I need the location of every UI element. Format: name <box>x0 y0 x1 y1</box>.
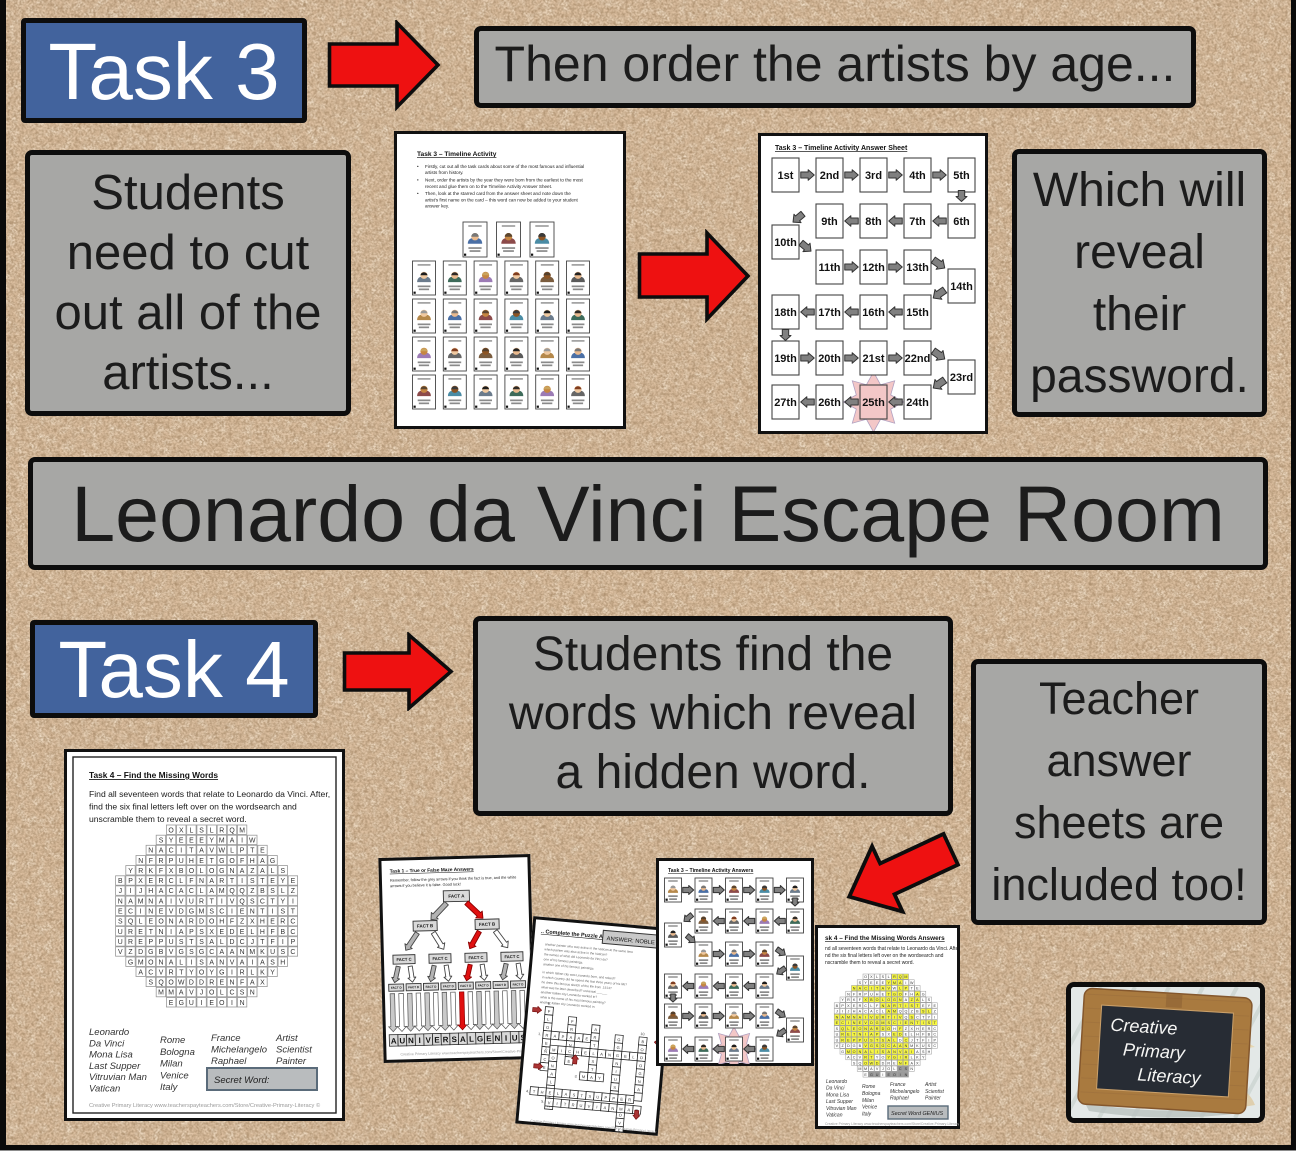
svg-text:C: C <box>169 888 174 895</box>
svg-text:R: R <box>443 1035 449 1044</box>
svg-text:Q: Q <box>239 888 245 895</box>
svg-text:G: G <box>881 1044 884 1048</box>
svg-text:O: O <box>881 1056 884 1060</box>
svg-text:artists from history.: artists from history. <box>425 170 463 175</box>
svg-text:A: A <box>209 959 214 966</box>
svg-text:D: D <box>882 1027 885 1031</box>
svg-text:Q: Q <box>239 898 245 905</box>
svg-text:A: A <box>159 898 164 905</box>
svg-text:I: I <box>911 1050 912 1054</box>
svg-text:B: B <box>260 888 265 895</box>
svg-text:N: N <box>219 959 224 966</box>
svg-text:A: A <box>260 959 265 966</box>
svg-text:L: L <box>200 888 204 895</box>
svg-text:P: P <box>128 878 133 885</box>
svg-text:L: L <box>469 1035 474 1044</box>
svg-text:R: R <box>280 919 285 926</box>
svg-text:O: O <box>199 969 205 976</box>
svg-text:Y: Y <box>128 868 133 875</box>
svg-text:M: M <box>619 1106 623 1111</box>
svg-text:arrows if you believe it is fa: arrows if you believe it is false. Good … <box>390 882 461 888</box>
svg-text:N: N <box>853 1015 856 1019</box>
svg-text:Vatican: Vatican <box>826 1113 843 1119</box>
svg-text:U: U <box>876 1015 879 1019</box>
svg-text:11th: 11th <box>818 262 840 274</box>
svg-text:I: I <box>221 898 223 905</box>
svg-text:R: R <box>928 1027 931 1031</box>
svg-text:G: G <box>893 1056 896 1060</box>
svg-text:F: F <box>159 868 163 875</box>
svg-text:N: N <box>899 1061 902 1065</box>
svg-text:Last Supper: Last Supper <box>89 1061 141 1072</box>
svg-text:1.: 1. <box>538 1032 541 1036</box>
svg-text:Raphael: Raphael <box>211 1056 247 1067</box>
svg-text:L: L <box>271 868 275 875</box>
svg-text:O: O <box>887 1067 890 1071</box>
svg-text:France: France <box>890 1082 906 1088</box>
svg-text:M: M <box>219 888 225 895</box>
svg-text:G: G <box>219 868 224 875</box>
svg-text:L: L <box>922 998 924 1002</box>
svg-text:M: M <box>138 959 144 966</box>
svg-text:I: I <box>201 1000 203 1007</box>
svg-text:E: E <box>148 919 153 926</box>
svg-text:J: J <box>847 1010 849 1014</box>
svg-text:S: S <box>209 909 214 916</box>
svg-text:E: E <box>240 929 245 936</box>
svg-text:20th: 20th <box>818 353 841 365</box>
svg-text:J: J <box>139 888 142 895</box>
svg-text:R: R <box>209 980 214 987</box>
svg-text:O: O <box>229 858 235 865</box>
svg-text:U: U <box>836 1033 839 1037</box>
svg-text:R: R <box>159 858 164 865</box>
svg-text:C: C <box>169 878 174 885</box>
svg-text:R: R <box>859 1004 862 1008</box>
svg-text:N: N <box>882 1004 885 1008</box>
svg-text:C: C <box>189 888 194 895</box>
svg-text:7th: 7th <box>909 216 926 228</box>
svg-text:Z: Z <box>250 868 254 875</box>
svg-text:G: G <box>853 1044 856 1048</box>
svg-text:C: C <box>148 969 153 976</box>
svg-text:Italy: Italy <box>160 1082 179 1093</box>
svg-text:L: L <box>847 1027 849 1031</box>
svg-text:Mona Lisa: Mona Lisa <box>89 1050 133 1061</box>
svg-text:FACT D: FACT D <box>460 984 472 988</box>
svg-text:I: I <box>923 1021 924 1025</box>
svg-text:V: V <box>230 898 235 905</box>
svg-text:R: R <box>593 1035 596 1040</box>
svg-text:Venice: Venice <box>160 1070 189 1081</box>
svg-text:Z: Z <box>240 919 244 926</box>
svg-text:F: F <box>149 858 153 865</box>
svg-text:E: E <box>291 878 296 885</box>
svg-text:Italy: Italy <box>862 1112 872 1118</box>
svg-text:Vitruvian Man: Vitruvian Man <box>826 1106 857 1112</box>
svg-text:J: J <box>200 990 203 997</box>
svg-text:R: R <box>240 969 245 976</box>
svg-text:A: A <box>179 919 184 926</box>
svg-text:R: R <box>219 878 224 885</box>
svg-text:R: R <box>199 898 204 905</box>
svg-text:2.: 2. <box>545 1047 548 1051</box>
svg-text:Literacy: Literacy <box>1137 1064 1202 1088</box>
svg-text:A: A <box>209 888 214 895</box>
svg-text:I: I <box>272 909 274 916</box>
svg-text:I: I <box>180 848 182 855</box>
svg-text:N: N <box>240 949 245 956</box>
svg-text:Find all seventeen words that: Find all seventeen words that relate to … <box>89 789 330 799</box>
svg-text:I: I <box>882 1073 883 1077</box>
svg-text:N: N <box>230 868 235 875</box>
svg-text:W: W <box>870 1061 874 1065</box>
svg-text:O: O <box>619 1112 623 1117</box>
svg-text:Q: Q <box>229 888 235 895</box>
svg-text:L: L <box>893 1038 895 1042</box>
svg-text:N: N <box>899 998 902 1002</box>
svg-text:3rd: 3rd <box>865 170 882 182</box>
svg-text:O: O <box>551 1055 555 1060</box>
svg-text:A: A <box>230 838 235 845</box>
svg-text:I: I <box>877 1050 878 1054</box>
svg-text:artist's first name on the car: artist's first name on the card – this w… <box>425 197 579 202</box>
svg-text:U: U <box>864 1038 867 1042</box>
svg-text:F: F <box>189 878 193 885</box>
svg-text:N: N <box>905 1073 908 1077</box>
svg-text:B: B <box>280 929 285 936</box>
svg-text:L: L <box>179 959 183 966</box>
svg-text:D: D <box>882 1061 885 1065</box>
svg-text:I: I <box>130 888 132 895</box>
svg-text:N: N <box>159 959 164 966</box>
svg-text:R: R <box>841 1033 844 1037</box>
svg-text:2nd: 2nd <box>820 170 840 182</box>
svg-text:I: I <box>231 909 233 916</box>
svg-text:E: E <box>148 878 153 885</box>
svg-text:E: E <box>199 838 204 845</box>
svg-text:G: G <box>616 1053 620 1058</box>
svg-text:B: B <box>179 868 184 875</box>
svg-text:O: O <box>639 1063 643 1068</box>
svg-text:Q: Q <box>858 1061 861 1065</box>
svg-text:R: R <box>847 998 850 1002</box>
svg-text:A: A <box>209 939 214 946</box>
svg-text:V: V <box>179 898 184 905</box>
svg-text:V: V <box>189 990 194 997</box>
svg-text:N: N <box>608 1052 611 1057</box>
svg-text:P: P <box>148 939 153 946</box>
svg-text:S: S <box>280 909 285 916</box>
svg-text:D: D <box>899 1033 902 1037</box>
svg-text:E: E <box>159 909 164 916</box>
svg-text:H: H <box>219 919 224 926</box>
svg-text:H: H <box>910 992 913 996</box>
svg-text:M: M <box>893 981 896 985</box>
svg-text:N: N <box>859 1050 862 1054</box>
svg-text:U: U <box>922 1044 925 1048</box>
svg-text:another one of his famous pain: another one of his famous paintings <box>543 962 594 970</box>
svg-text:5.: 5. <box>541 1100 544 1104</box>
svg-text:U: U <box>512 1033 518 1042</box>
svg-text:I: I <box>900 1021 901 1025</box>
svg-text:R: R <box>876 1027 879 1031</box>
svg-text:Y: Y <box>270 969 275 976</box>
svg-text:A: A <box>179 990 184 997</box>
svg-text:D: D <box>847 1044 850 1048</box>
svg-text:N: N <box>118 898 123 905</box>
svg-text:G: G <box>870 1073 873 1077</box>
svg-text:Y: Y <box>209 969 214 976</box>
svg-text:E: E <box>179 838 184 845</box>
svg-text:nscramble them to reveal a sec: nscramble them to reveal a secret word. <box>825 960 914 966</box>
svg-text:P: P <box>291 939 296 946</box>
svg-text:U: U <box>189 898 194 905</box>
svg-text:N: N <box>836 1015 839 1019</box>
svg-text:C: C <box>219 909 224 916</box>
svg-text:8th: 8th <box>865 216 882 228</box>
svg-text:I: I <box>905 981 906 985</box>
svg-text:F: F <box>270 929 274 936</box>
svg-text:R: R <box>571 1102 574 1107</box>
svg-text:L: L <box>928 1010 930 1014</box>
svg-text:10.: 10. <box>640 1032 645 1036</box>
svg-text:C: C <box>290 949 295 956</box>
svg-text:L: L <box>250 969 254 976</box>
svg-text:D: D <box>138 949 143 956</box>
svg-text:I: I <box>894 1015 895 1019</box>
svg-text:A: A <box>199 848 204 855</box>
svg-text:J: J <box>882 1067 884 1071</box>
svg-text:X: X <box>250 919 255 926</box>
svg-text:R: R <box>128 929 133 936</box>
svg-text:L: L <box>893 1067 895 1071</box>
svg-text:FACT D: FACT D <box>408 985 420 989</box>
svg-text:O: O <box>864 975 867 979</box>
svg-text:E: E <box>260 848 265 855</box>
svg-text:S: S <box>270 888 275 895</box>
svg-text:H: H <box>853 1010 856 1014</box>
svg-text:L: L <box>870 1004 872 1008</box>
svg-text:U: U <box>179 858 184 865</box>
svg-text:S: S <box>148 980 153 987</box>
svg-text:U: U <box>189 1000 194 1007</box>
svg-text:A: A <box>159 888 164 895</box>
svg-text:H: H <box>250 858 255 865</box>
svg-text:P: P <box>189 929 194 936</box>
svg-text:Q: Q <box>229 827 235 834</box>
svg-text:U: U <box>596 1094 599 1099</box>
svg-text:C: C <box>933 1027 936 1031</box>
svg-text:C: C <box>899 1067 902 1071</box>
svg-text:C: C <box>260 898 265 905</box>
svg-text:A: A <box>230 949 235 956</box>
svg-text:L: L <box>200 868 204 875</box>
svg-text:22nd: 22nd <box>905 353 931 365</box>
svg-text:M: M <box>893 1010 896 1014</box>
svg-text:I: I <box>231 969 233 976</box>
svg-text:S: S <box>270 959 275 966</box>
svg-text:•: • <box>417 191 419 196</box>
svg-text:P: P <box>240 848 245 855</box>
svg-text:L: L <box>911 1056 913 1060</box>
svg-text:Rome: Rome <box>862 1084 876 1090</box>
svg-text:Q: Q <box>841 1027 844 1031</box>
svg-text:H: H <box>576 1049 579 1054</box>
svg-text:Q: Q <box>899 975 902 979</box>
svg-text:U: U <box>118 939 123 946</box>
svg-text:A: A <box>460 1035 466 1044</box>
svg-text:•: • <box>417 164 419 169</box>
svg-text:FACT B: FACT B <box>417 923 434 928</box>
svg-text:F: F <box>240 980 244 987</box>
svg-text:W: W <box>178 980 185 987</box>
svg-text:16th: 16th <box>862 307 885 319</box>
svg-text:17th: 17th <box>818 307 841 319</box>
svg-text:A: A <box>391 1037 397 1046</box>
svg-text:S: S <box>199 959 204 966</box>
svg-text:M: M <box>199 909 205 916</box>
svg-text:Creative Primary Literacy www.: Creative Primary Literacy www.teacherspa… <box>89 1102 321 1109</box>
svg-text:C: C <box>209 949 214 956</box>
svg-text:Da Vinci: Da Vinci <box>826 1086 845 1092</box>
svg-text:S: S <box>179 939 184 946</box>
svg-text:G: G <box>893 992 896 996</box>
svg-text:L: L <box>139 919 143 926</box>
svg-text:G: G <box>128 959 133 966</box>
svg-text:G: G <box>179 1000 184 1007</box>
svg-text:L: L <box>230 848 234 855</box>
svg-text:I: I <box>505 1034 507 1043</box>
svg-text:I: I <box>934 1015 935 1019</box>
svg-text:S: S <box>159 838 164 845</box>
svg-text:Leonardo: Leonardo <box>89 1027 129 1038</box>
svg-text:Scientist: Scientist <box>276 1045 312 1056</box>
svg-text:N: N <box>148 909 153 916</box>
svg-text:U: U <box>270 949 275 956</box>
svg-text:FACT D: FACT D <box>495 983 507 987</box>
svg-text:A: A <box>240 868 245 875</box>
svg-text:I: I <box>140 909 142 916</box>
svg-text:R: R <box>159 878 164 885</box>
svg-text:sk 4 – Find the Missing Words: sk 4 – Find the Missing Words Answers <box>825 935 945 942</box>
svg-text:unscramble them to reveal a se: unscramble them to reveal a secret word. <box>89 814 247 824</box>
svg-text:G: G <box>617 1037 621 1042</box>
svg-text:Next, order the artists by the: Next, order the artists by the year they… <box>425 178 584 183</box>
svg-text:C: C <box>864 1004 867 1008</box>
svg-text:FACT C: FACT C <box>468 955 483 960</box>
svg-text:Artist: Artist <box>275 1033 298 1044</box>
svg-text:Creative Primary Literacy www.: Creative Primary Literacy www.teacherspa… <box>825 1122 959 1126</box>
svg-text:H: H <box>916 1033 919 1037</box>
svg-text:V: V <box>159 969 164 976</box>
svg-text:P: P <box>159 939 164 946</box>
svg-text:A: A <box>260 858 265 865</box>
svg-text:O: O <box>546 1025 550 1030</box>
svg-text:N: N <box>148 898 153 905</box>
svg-text:5th: 5th <box>953 170 970 182</box>
svg-text:G: G <box>922 992 925 996</box>
svg-text:G: G <box>219 858 224 865</box>
svg-text:E: E <box>189 838 194 845</box>
svg-text:H: H <box>280 959 285 966</box>
svg-text:I: I <box>241 838 243 845</box>
svg-text:S: S <box>189 949 194 956</box>
svg-text:C: C <box>853 1056 856 1060</box>
svg-text:C: C <box>864 987 867 991</box>
svg-text:Painter: Painter <box>925 1096 941 1102</box>
svg-text:M: M <box>858 1067 861 1071</box>
svg-text:A: A <box>179 888 184 895</box>
svg-text:S: S <box>250 898 255 905</box>
svg-text:I: I <box>231 1000 233 1007</box>
svg-text:Vitruvian Man: Vitruvian Man <box>89 1072 147 1083</box>
svg-text:L: L <box>876 975 878 979</box>
svg-text:L: L <box>882 998 884 1002</box>
svg-text:L: L <box>250 929 254 936</box>
svg-text:M: M <box>904 975 907 979</box>
svg-text:R: R <box>545 1033 548 1038</box>
svg-text:Task 3 – Timeline Activity: Task 3 – Timeline Activity <box>417 151 497 158</box>
svg-text:R: R <box>189 919 194 926</box>
svg-text:C: C <box>933 1044 936 1048</box>
svg-text:Task 1 – True or False Maze An: Task 1 – True or False Maze Answers <box>390 867 474 875</box>
svg-text:M: M <box>847 1015 850 1019</box>
svg-text:27th: 27th <box>774 397 797 409</box>
svg-text:G: G <box>189 909 194 916</box>
svg-text:J: J <box>251 939 254 946</box>
svg-text:O: O <box>853 1050 856 1054</box>
svg-text:19th: 19th <box>774 353 797 365</box>
svg-text:Q: Q <box>904 1010 907 1014</box>
svg-text:C: C <box>568 1049 571 1054</box>
svg-text:O: O <box>876 998 879 1002</box>
svg-text:C: C <box>169 848 174 855</box>
svg-text:X: X <box>209 929 214 936</box>
svg-text:V: V <box>209 848 214 855</box>
svg-text:G: G <box>270 858 275 865</box>
svg-text:N: N <box>240 1000 245 1007</box>
svg-text:FACT D: FACT D <box>478 983 490 987</box>
svg-text:K: K <box>260 969 265 976</box>
svg-text:D: D <box>179 909 184 916</box>
svg-text:C: C <box>876 1010 879 1014</box>
svg-text:Michelangelo: Michelangelo <box>211 1045 267 1056</box>
svg-text:N: N <box>494 1034 500 1043</box>
svg-text:10th: 10th <box>774 237 797 249</box>
svg-text:N: N <box>859 1033 862 1037</box>
svg-text:S: S <box>118 919 123 926</box>
svg-text:G: G <box>870 1044 873 1048</box>
svg-text:N: N <box>905 1044 908 1048</box>
svg-text:A: A <box>240 959 245 966</box>
svg-text:M: M <box>138 898 144 905</box>
svg-text:G: G <box>876 1021 879 1025</box>
svg-text:G: G <box>199 949 204 956</box>
svg-text:I: I <box>241 878 243 885</box>
svg-text:FACT D: FACT D <box>426 985 438 989</box>
svg-text:V: V <box>169 909 174 916</box>
svg-text:4.: 4. <box>526 1089 529 1093</box>
svg-text:21st: 21st <box>862 353 884 365</box>
svg-text:A: A <box>209 878 214 885</box>
svg-text:I: I <box>282 939 284 946</box>
svg-text:Y: Y <box>169 838 174 845</box>
svg-text:Task 3 – Timeline Activity Ans: Task 3 – Timeline Activity Answer Sheet <box>775 145 908 152</box>
svg-text:Q: Q <box>128 919 134 926</box>
svg-text:O: O <box>640 1047 644 1052</box>
svg-text:18th: 18th <box>774 307 797 319</box>
